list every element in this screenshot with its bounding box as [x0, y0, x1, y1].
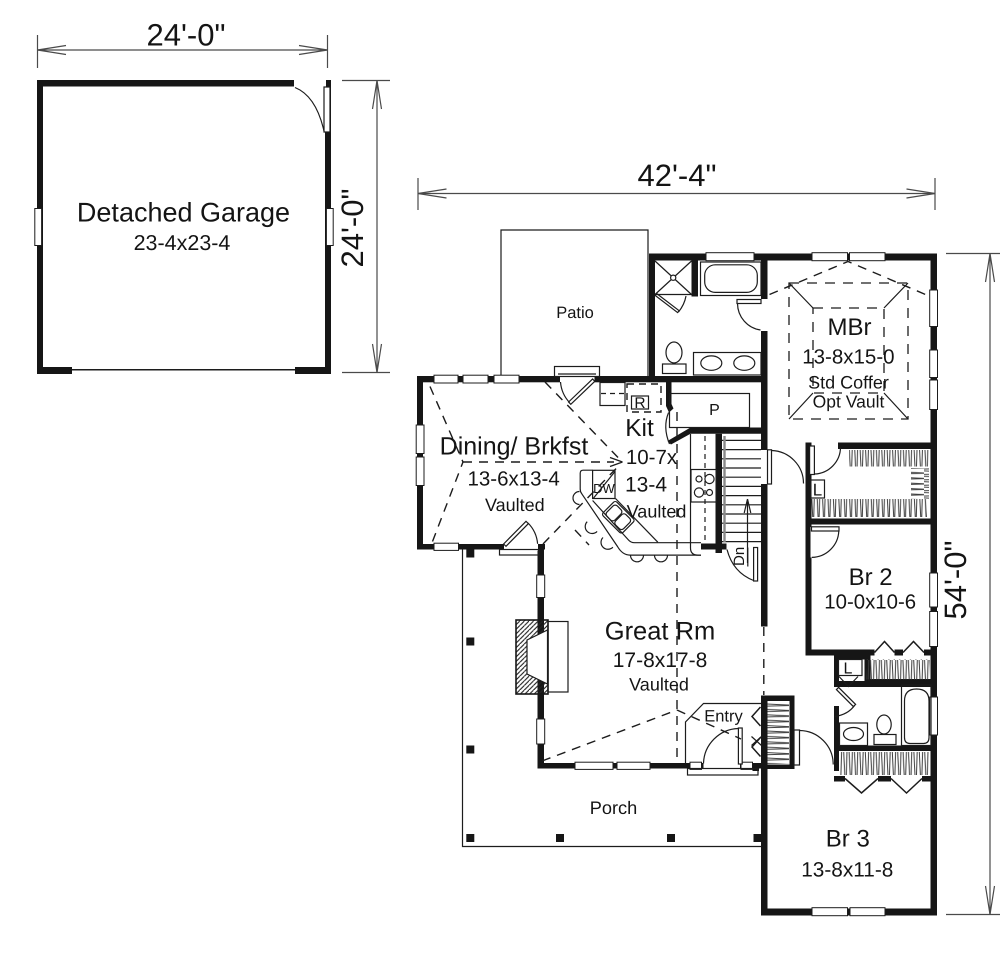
svg-text:Std Coffer: Std Coffer — [808, 373, 889, 393]
svg-text:Patio: Patio — [556, 304, 594, 322]
svg-text:Opt Vault: Opt Vault — [813, 392, 885, 412]
svg-text:10-0x10-6: 10-0x10-6 — [824, 592, 916, 614]
svg-text:Vaulted: Vaulted — [485, 495, 545, 515]
svg-text:L: L — [844, 661, 853, 678]
svg-text:Kit: Kit — [625, 415, 654, 442]
svg-text:L: L — [813, 481, 822, 500]
svg-text:42'-4": 42'-4" — [638, 158, 717, 193]
svg-text:13-8x15-0: 13-8x15-0 — [802, 346, 894, 369]
svg-text:R: R — [634, 395, 645, 412]
svg-text:23-4x23-4: 23-4x23-4 — [134, 231, 231, 255]
svg-text:10-7x: 10-7x — [626, 446, 678, 469]
svg-text:24'-0": 24'-0" — [335, 189, 370, 268]
svg-text:Entry: Entry — [704, 708, 743, 726]
svg-text:13-8x11-8: 13-8x11-8 — [801, 859, 893, 882]
svg-text:Dining/ Brkfst: Dining/ Brkfst — [440, 433, 589, 461]
svg-text:13-6x13-4: 13-6x13-4 — [467, 468, 559, 491]
svg-text:13-4: 13-4 — [625, 474, 667, 497]
svg-text:MBr: MBr — [828, 314, 872, 341]
svg-text:Vaulted: Vaulted — [627, 502, 687, 522]
svg-text:Porch: Porch — [590, 798, 638, 818]
svg-text:DW: DW — [593, 481, 615, 496]
svg-text:Vaulted: Vaulted — [629, 675, 689, 695]
svg-text:P: P — [709, 402, 720, 419]
svg-text:17-8x17-8: 17-8x17-8 — [613, 649, 708, 672]
svg-text:Br 3: Br 3 — [826, 826, 870, 853]
svg-text:Dn: Dn — [731, 547, 748, 566]
svg-text:24'-0": 24'-0" — [147, 18, 226, 53]
svg-text:Br 2: Br 2 — [849, 564, 893, 591]
svg-text:Great Rm: Great Rm — [605, 618, 716, 646]
svg-text:Detached Garage: Detached Garage — [77, 198, 290, 228]
svg-text:54'-0": 54'-0" — [938, 541, 973, 620]
